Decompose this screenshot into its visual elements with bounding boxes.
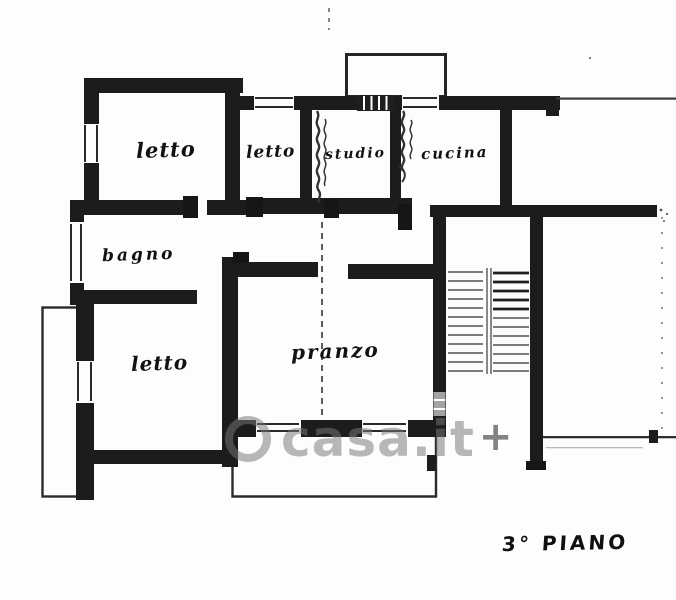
room-label-studio: studio	[325, 145, 387, 163]
dashed-lines	[322, 8, 662, 437]
window-pranzo-left	[256, 417, 301, 439]
noise-specks	[589, 57, 668, 222]
top-balcony	[347, 55, 446, 97]
floorplan-page: letto letto studio cucina bagno letto pr…	[0, 0, 676, 600]
window-cucina	[402, 93, 439, 112]
scan-gray-marks	[434, 392, 446, 416]
room-label-letto-n: letto	[246, 141, 296, 163]
floor-label: 3° PIANO	[501, 530, 629, 556]
window-letto-n	[254, 93, 294, 112]
bottom-terrace	[233, 437, 437, 497]
window-bagno	[67, 222, 86, 283]
staircase	[448, 268, 529, 374]
window-letto-sw-balcony-door	[73, 361, 96, 403]
room-label-pranzo: pranzo	[291, 337, 381, 364]
room-label-letto-nw: letto	[136, 136, 197, 163]
window-studio-hatched	[357, 95, 394, 111]
window-letto-nw	[81, 124, 101, 163]
room-label-cucina: cucina	[421, 143, 489, 163]
floorplan-drawing	[0, 0, 676, 600]
room-label-letto-sw: letto	[131, 350, 189, 376]
window-pranzo-right	[362, 417, 408, 439]
room-label-bagno: bagno	[102, 244, 176, 267]
thin-lines	[543, 98, 676, 449]
